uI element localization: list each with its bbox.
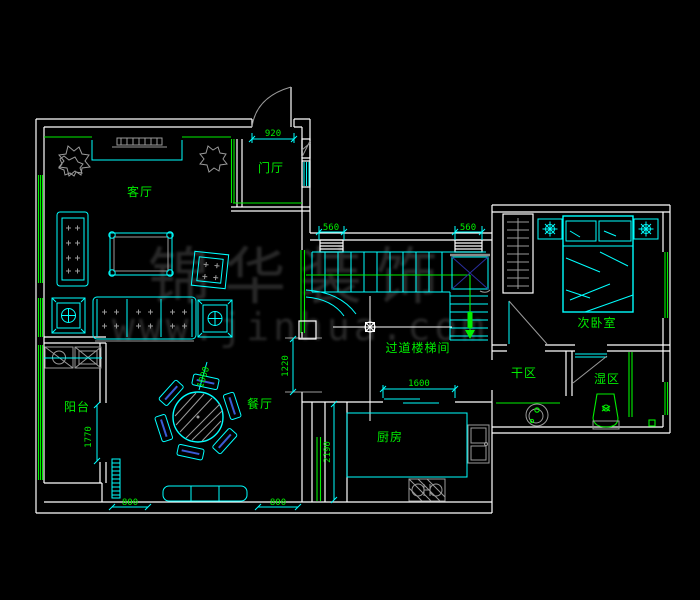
label-bedroom: 次卧室 xyxy=(577,315,616,330)
dim-shaft-right: 560 xyxy=(460,223,476,233)
label-living-room: 客厅 xyxy=(127,184,153,199)
end-table-left xyxy=(52,298,85,333)
dim-kitchen-opening: 1600 xyxy=(408,379,430,389)
label-foyer: 门厅 xyxy=(258,160,284,175)
dim-window-left: 800 xyxy=(122,498,138,508)
label-dining-room: 餐厅 xyxy=(247,396,273,411)
dim-window-right: 800 xyxy=(270,498,286,508)
label-dry-area: 干区 xyxy=(511,366,537,380)
dim-shaft-left: 560 xyxy=(323,223,339,233)
dim-balcony-opening: 1770 xyxy=(84,426,94,448)
dim-kitchen-depth: 2190 xyxy=(323,441,333,463)
watermark-text-1: 锦华装饰 xyxy=(148,240,452,313)
label-balcony: 阳台 xyxy=(64,399,90,414)
dim-dining-opening: 1220 xyxy=(281,355,291,377)
label-wet-area: 湿区 xyxy=(594,371,620,386)
label-stair-hall: 过道楼梯间 xyxy=(385,340,450,355)
dim-entry-door: 920 xyxy=(265,129,281,139)
floor-plan-canvas: 锦华装饰 www.jinhua.com xyxy=(0,0,700,600)
label-kitchen: 厨房 xyxy=(377,429,403,444)
